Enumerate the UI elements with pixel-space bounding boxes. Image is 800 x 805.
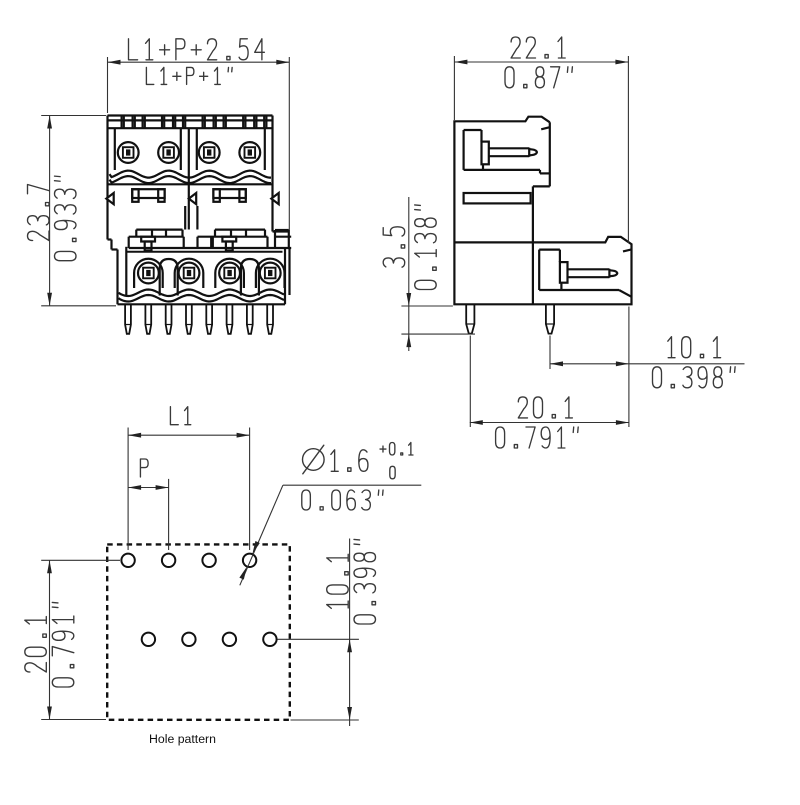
svg-text:Hole pattern: Hole pattern <box>149 732 216 746</box>
